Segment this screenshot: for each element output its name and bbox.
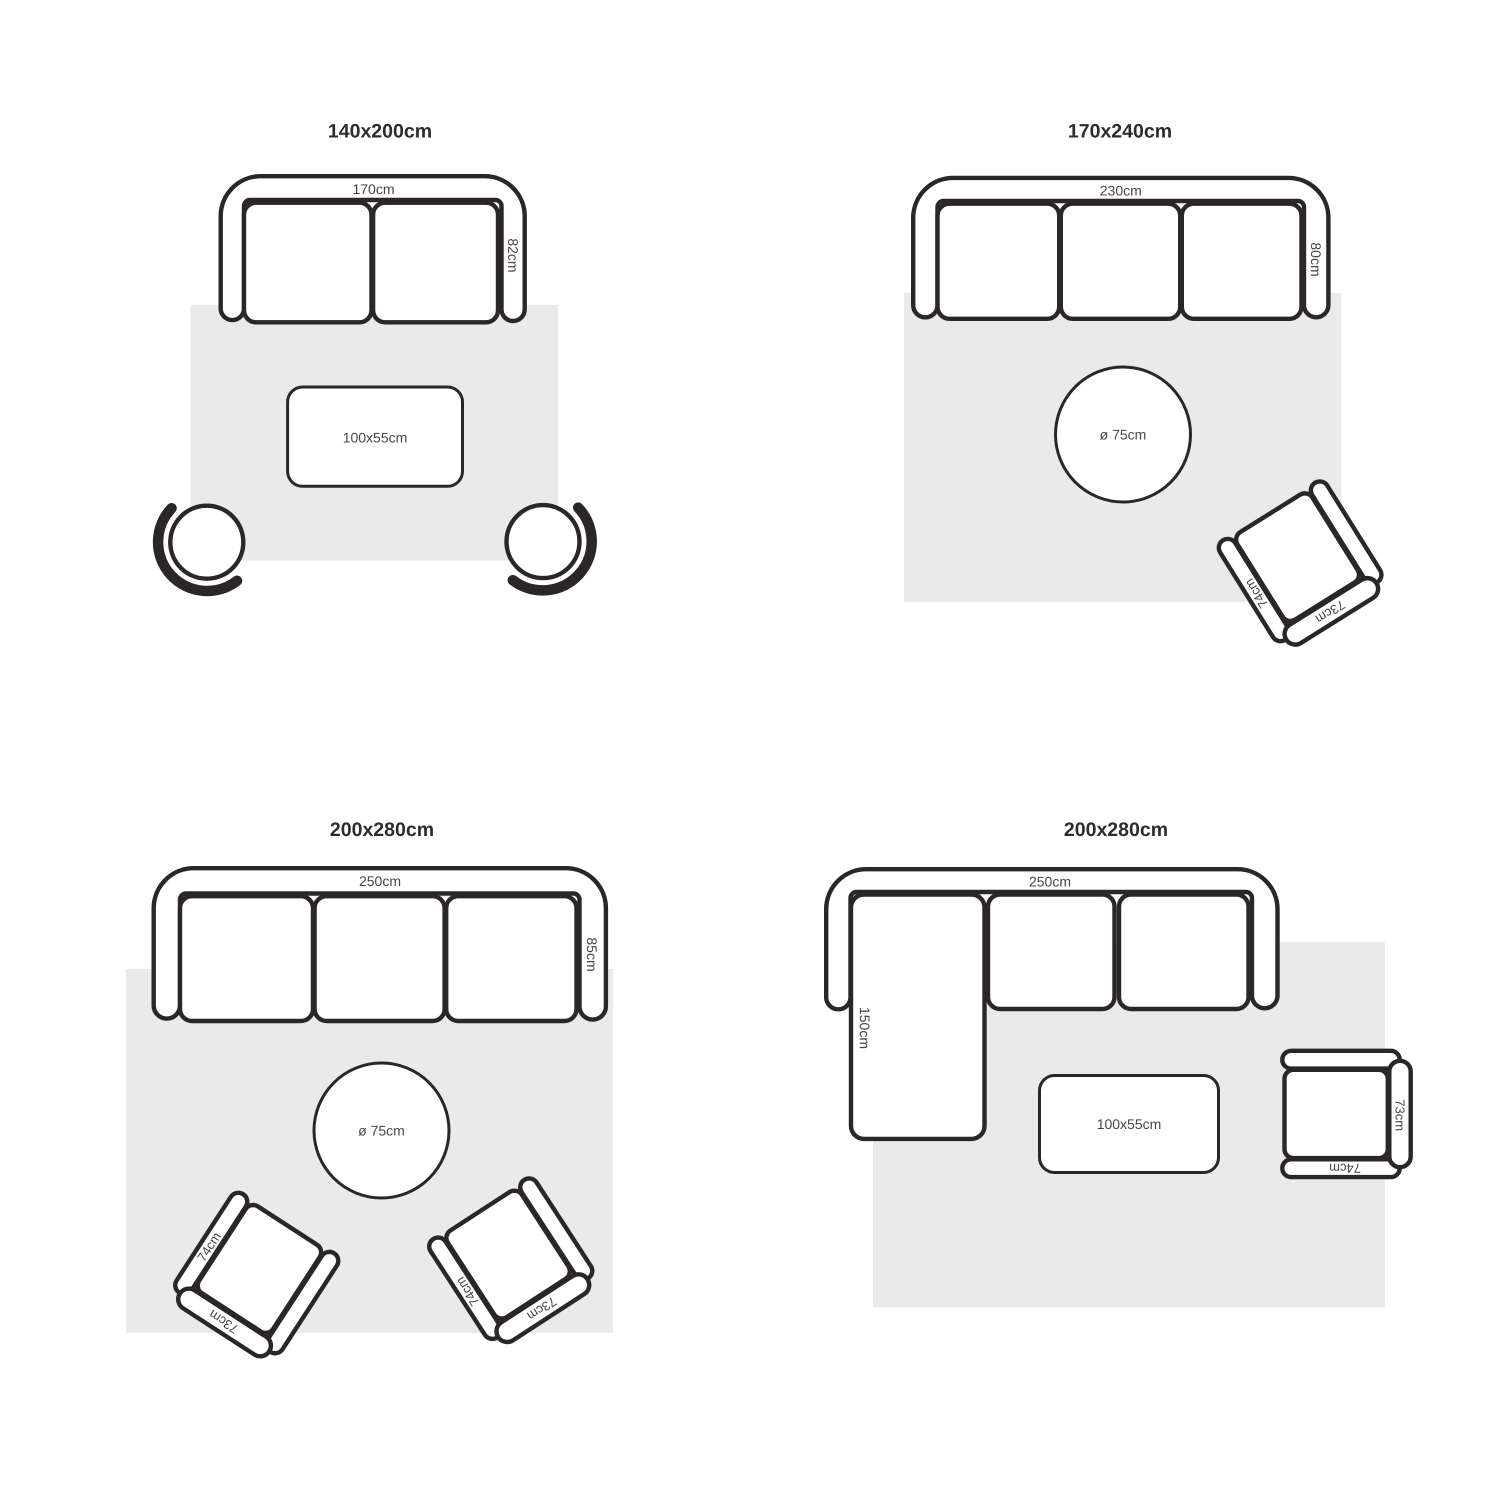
svg-text:230cm: 230cm [1100, 182, 1142, 198]
svg-text:74cm: 74cm [1329, 1161, 1361, 1176]
svg-text:200x280cm: 200x280cm [1064, 819, 1168, 841]
svg-text:73cm: 73cm [1392, 1099, 1407, 1131]
svg-text:ø 75cm: ø 75cm [1100, 426, 1147, 442]
svg-text:200x280cm: 200x280cm [330, 819, 434, 841]
svg-text:82cm: 82cm [505, 238, 521, 272]
svg-text:ø 75cm: ø 75cm [358, 1122, 405, 1138]
svg-text:150cm: 150cm [857, 1007, 873, 1049]
svg-text:250cm: 250cm [359, 873, 401, 889]
svg-text:80cm: 80cm [1308, 242, 1324, 276]
svg-text:100x55cm: 100x55cm [1097, 1116, 1162, 1132]
svg-text:170x240cm: 170x240cm [1068, 120, 1172, 142]
svg-text:250cm: 250cm [1029, 873, 1071, 889]
svg-text:140x200cm: 140x200cm [328, 120, 432, 142]
svg-text:100x55cm: 100x55cm [343, 429, 408, 445]
svg-text:85cm: 85cm [584, 937, 600, 971]
svg-text:170cm: 170cm [352, 181, 394, 197]
